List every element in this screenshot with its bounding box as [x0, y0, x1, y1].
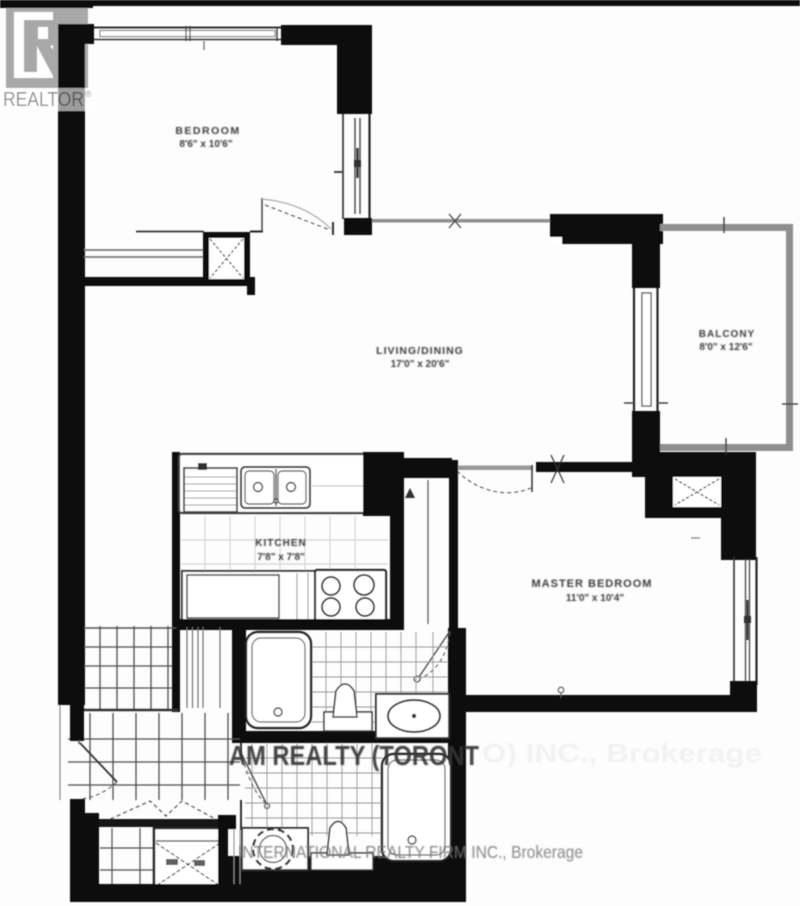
svg-text:REALTOR: REALTOR [3, 89, 84, 111]
svg-text:8'6" x 10'6": 8'6" x 10'6" [179, 139, 232, 150]
svg-text:MASTER BEDROOM: MASTER BEDROOM [532, 578, 653, 590]
svg-text:7'8" x 7'8": 7'8" x 7'8" [257, 552, 305, 563]
svg-text:8'0" x 12'6": 8'0" x 12'6" [699, 342, 752, 353]
svg-text:LIVING/DINING: LIVING/DINING [376, 345, 464, 357]
svg-text:17'0" x 20'6": 17'0" x 20'6" [391, 359, 450, 370]
svg-text:®: ® [85, 89, 92, 99]
svg-text:BALCONY: BALCONY [699, 329, 755, 340]
svg-text:O) INC., Brokerage: O) INC., Brokerage [482, 738, 762, 768]
svg-text:BEDROOM: BEDROOM [175, 125, 240, 137]
svg-text:AM REALTY (TORONT: AM REALTY (TORONT [229, 740, 479, 771]
svg-text:KITCHEN: KITCHEN [255, 538, 306, 549]
svg-text:INTERNATIONAL REALTY FIRM INC.: INTERNATIONAL REALTY FIRM INC., Brokerag… [238, 842, 583, 862]
svg-text:11'0" x 10'4": 11'0" x 10'4" [566, 593, 624, 604]
